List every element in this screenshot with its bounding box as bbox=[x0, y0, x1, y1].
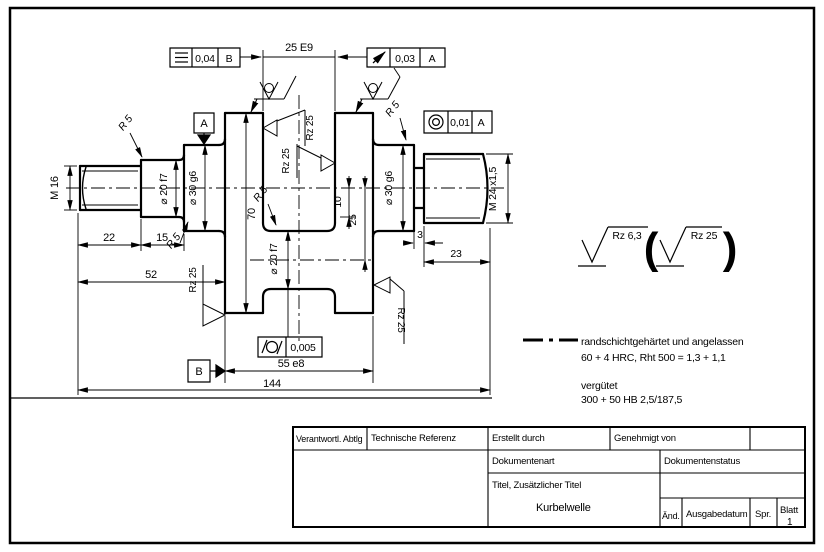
tb-issue-date: Ausgabedatum bbox=[686, 509, 748, 520]
frame-circularity-datum: A bbox=[478, 117, 485, 129]
tb-rev: Änd. bbox=[662, 511, 680, 521]
datum-b-label: B bbox=[195, 366, 202, 378]
dim-d30-left: ⌀ 30 g6 bbox=[187, 171, 199, 205]
tb-approved-by: Genehmigt von bbox=[614, 433, 676, 444]
dim-crank-radius-25: 25 bbox=[347, 214, 359, 226]
legend-texts: Rz 6,3 Rz 25 ( ) randschichtgehärtet und… bbox=[581, 224, 744, 406]
rz25-web-left-inner: Rz 25 bbox=[305, 115, 316, 141]
datum-a-label: A bbox=[200, 118, 208, 130]
rz25-web-right-inner: Rz 25 bbox=[281, 148, 292, 174]
tb-title: Kurbelwelle bbox=[536, 502, 591, 514]
dim-52: 52 bbox=[145, 269, 157, 281]
surface-symbol-web-left-face bbox=[203, 265, 225, 326]
note-hardening-1: randschichtgehärtet und angelassen bbox=[581, 336, 744, 348]
dim-pin-width: 25 E9 bbox=[285, 42, 313, 54]
note-hardening-2: 60 + 4 HRC, Rht 500 = 1,3 + 1,1 bbox=[581, 352, 726, 364]
dim-web-height: 70 bbox=[246, 208, 258, 220]
surface-symbol-web-right-inner bbox=[297, 144, 335, 178]
note-tempering-2: 300 + 50 HB 2,5/187,5 bbox=[581, 394, 683, 406]
runout-icon bbox=[373, 52, 385, 63]
dim-pin-dia: ⌀ 20 f7 bbox=[268, 243, 280, 275]
dim-22: 22 bbox=[103, 232, 115, 244]
radius-r5-3: R 5 bbox=[251, 184, 270, 204]
tb-sheet: Blatt bbox=[780, 505, 799, 516]
legend-paren-close: ) bbox=[723, 224, 737, 273]
dim-3: 3 bbox=[417, 229, 423, 241]
dim-m24: M 24 x1,5 bbox=[487, 166, 499, 211]
tb-technical-reference: Technische Referenz bbox=[371, 433, 456, 444]
frame-runout-datum: A bbox=[429, 53, 436, 65]
symmetry-icon bbox=[175, 53, 188, 62]
dim-55e8: 55 e8 bbox=[278, 358, 305, 370]
note-tempering-1: vergütet bbox=[581, 380, 618, 392]
frame-symmetry-datum: B bbox=[226, 53, 233, 65]
radius-r5-1: R 5 bbox=[116, 113, 135, 133]
centerlines bbox=[66, 95, 504, 343]
frame-cylindricity-value: 0,005 bbox=[290, 342, 316, 354]
shaft-outline bbox=[80, 113, 488, 313]
drawing-sheet: 25 E9 0,04 B 0,03 A 0,01 A 0,005 A B M 1… bbox=[0, 0, 824, 552]
radius-r5-4: R 5 bbox=[383, 99, 402, 119]
rz25-web-left-face: Rz 25 bbox=[188, 267, 199, 293]
cylindricity-icon bbox=[262, 340, 282, 354]
tb-created-by: Erstellt durch bbox=[492, 433, 545, 444]
dim-offset-10: 10 bbox=[332, 196, 344, 208]
dim-15: 15 bbox=[156, 232, 168, 244]
legend-paren-open: ( bbox=[644, 224, 659, 273]
tb-lang: Spr. bbox=[755, 509, 771, 520]
legend-rz25: Rz 25 bbox=[691, 230, 718, 242]
rz25-web-right-face: Rz 25 bbox=[395, 307, 406, 333]
dimension-texts: 25 E9 0,04 B 0,03 A 0,01 A 0,005 A B M 1… bbox=[49, 42, 499, 390]
dim-d30-right: ⌀ 30 g6 bbox=[383, 171, 395, 205]
frame-symmetry-value: 0,04 bbox=[195, 53, 215, 65]
dim-23: 23 bbox=[450, 248, 462, 260]
tb-title-label: Titel, Zusätzlicher Titel bbox=[492, 480, 581, 491]
concentricity-icon bbox=[429, 115, 443, 129]
tb-document-status: Dokumentenstatus bbox=[664, 456, 740, 467]
technical-drawing: 25 E9 0,04 B 0,03 A 0,01 A 0,005 A B M 1… bbox=[0, 0, 824, 552]
datum-b bbox=[188, 360, 225, 382]
title-block-texts: Verantwortl. Abtlg Technische Referenz E… bbox=[296, 433, 799, 528]
dim-d20-left: ⌀ 20 f7 bbox=[158, 173, 170, 205]
tb-responsible-dept: Verantwortl. Abtlg bbox=[296, 434, 363, 444]
dim-m16: M 16 bbox=[49, 176, 61, 200]
legend-rz63: Rz 6,3 bbox=[612, 230, 642, 242]
frame-runout-value: 0,03 bbox=[395, 53, 415, 65]
dim-144: 144 bbox=[263, 378, 281, 390]
tb-sheet-no: 1 bbox=[787, 517, 793, 528]
frame-circularity-value: 0,01 bbox=[450, 117, 470, 129]
tb-document-type: Dokumentenart bbox=[492, 456, 555, 467]
surface-symbol-no-removal-left bbox=[251, 76, 296, 112]
